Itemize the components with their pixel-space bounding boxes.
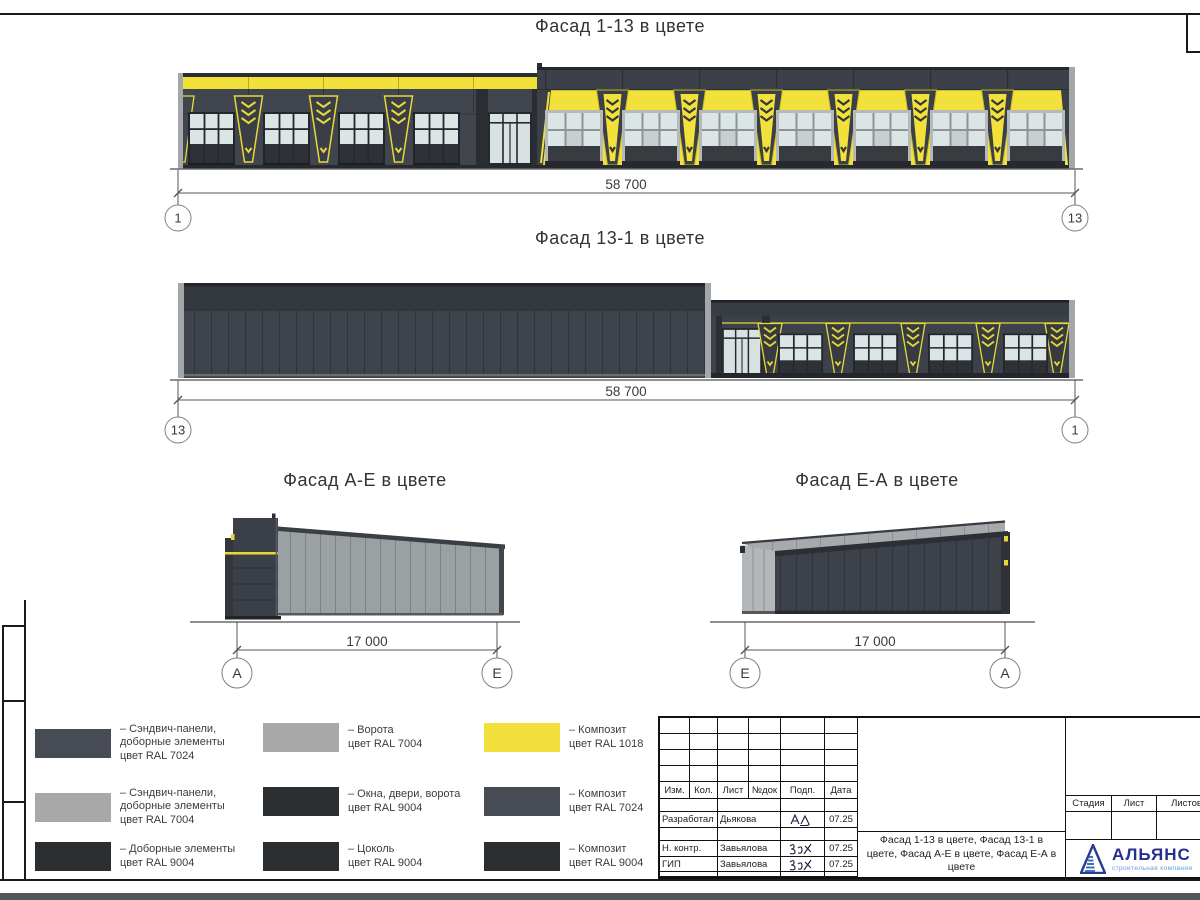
title-block-middle: Фасад 1-13 в цвете, Фасад 13-1 в цвете, … — [858, 718, 1066, 877]
legend-swatch-ral1018 — [484, 723, 560, 752]
stage-table: Стадия Лист Листов — [1066, 796, 1200, 840]
legend-label: – Окна, двери, ворота цвет RAL 9004 — [348, 788, 460, 815]
axis-1: 1 — [174, 211, 181, 226]
legend-label: – Композит цвет RAL 1018 — [569, 724, 643, 751]
title-block-left: Изм. Кол. Лист №док Подп. Дата Разработа… — [660, 718, 858, 877]
facade-e-a-dim: 17 000 — [854, 634, 895, 649]
company-logo: АЛЬЯНС строительная компания — [1066, 840, 1200, 877]
date-ncontrol: 07.25 — [825, 841, 857, 857]
date-gip: 07.25 — [825, 857, 857, 872]
facade-1-13-drawing: 58 700 1 13 — [160, 62, 1090, 234]
legend-label: – Доборные элементы цвет RAL 9004 — [120, 843, 235, 870]
sheet-header: Лист — [1112, 796, 1157, 812]
legend-swatch-ral7024 — [35, 729, 111, 758]
legend-swatch-composite7024 — [484, 787, 560, 816]
stage-header: Стадия — [1066, 796, 1112, 812]
header-podp: Подп. — [781, 782, 825, 799]
sheets-header: Листов — [1157, 796, 1200, 812]
axis-1-right: 1 — [1071, 423, 1078, 438]
legend-label: – Сэндвич-панели, доборные элементы цвет… — [120, 787, 225, 827]
axis-a2: А — [1000, 665, 1010, 681]
legend-item: – Композит цвет RAL 9004 — [484, 842, 643, 871]
frame-left-divider-1 — [2, 625, 25, 627]
axis-13: 13 — [1068, 211, 1082, 226]
signature-ncontrol — [787, 842, 819, 855]
header-list: Лист — [718, 782, 749, 799]
page-edge-strip — [0, 893, 1200, 900]
document-code-cell — [858, 718, 1065, 832]
frame-left-divider-2 — [2, 700, 25, 702]
date-developer: 07.25 — [825, 812, 857, 828]
frame-left-outer-line — [2, 625, 4, 880]
legend-item: – Композит цвет RAL 7024 — [484, 787, 643, 816]
facade-a-e-title: Фасад А-Е в цвете — [215, 470, 515, 491]
signature-developer — [787, 813, 819, 826]
frame-bottom-line — [0, 879, 1200, 881]
legend-item: – Композит цвет RAL 1018 — [484, 723, 643, 752]
role-ncontrol: Н. контр. — [660, 841, 718, 857]
revision-rows — [660, 718, 857, 782]
logo-subtitle: строительная компания — [1112, 865, 1192, 872]
frame-top-line — [0, 13, 1200, 15]
legend-item: – Доборные элементы цвет RAL 9004 — [35, 842, 235, 871]
legend-swatch-ral9004 — [35, 842, 111, 871]
frame-left-divider-3 — [2, 801, 25, 803]
legend-item: – Цоколь цвет RAL 9004 — [263, 842, 422, 871]
facade-1-13-title: Фасад 1-13 в цвете — [470, 16, 770, 37]
legend-label: – Сэндвич-панели, доборные элементы цвет… — [120, 723, 225, 763]
legend-label: – Композит цвет RAL 7024 — [569, 788, 643, 815]
role-developer: Разработал — [660, 812, 718, 828]
drawing-sheet: Фасад 1-13 в цвете Фасад 13-1 в цвете Фа… — [0, 0, 1200, 900]
legend-swatch-plinth — [263, 842, 339, 871]
title-block-header-row: Изм. Кол. Лист №док Подп. Дата — [660, 782, 857, 799]
legend-item: – Сэндвич-панели, доборные элементы цвет… — [35, 787, 225, 827]
name-developer: Дьякова — [718, 812, 781, 828]
legend-item: – Сэндвич-панели, доборные элементы цвет… — [35, 723, 225, 763]
legend-swatch-ral7004 — [35, 793, 111, 822]
legend-item: – Ворота цвет RAL 7004 — [263, 723, 422, 752]
role-gip: ГИП — [660, 857, 718, 872]
header-data: Дата — [825, 782, 857, 799]
signature-rows: Разработал Дьякова 07.25 Н. контр. Завья… — [660, 799, 857, 877]
name-gip: Завьялова — [718, 857, 781, 872]
header-kol: Кол. — [690, 782, 718, 799]
legend-swatch-composite9004 — [484, 842, 560, 871]
axis-e2: Е — [740, 665, 749, 681]
sheet-title: Фасад 1-13 в цвете, Фасад 13-1 в цвете, … — [858, 832, 1065, 877]
legend-item: – Окна, двери, ворота цвет RAL 9004 — [263, 787, 460, 816]
legend-swatch-gates — [263, 723, 339, 752]
facade-13-1-drawing: 58 700 13 1 — [160, 276, 1090, 448]
legend-swatch-windows — [263, 787, 339, 816]
axis-e: Е — [492, 665, 501, 681]
legend-label: – Ворота цвет RAL 7004 — [348, 724, 422, 751]
frame-corner-box — [1186, 13, 1200, 53]
title-block: Изм. Кол. Лист №док Подп. Дата Разработа… — [658, 716, 1200, 879]
facade-13-1-dim: 58 700 — [605, 384, 646, 399]
header-ndok: №док — [749, 782, 781, 799]
facade-1-13-dim: 58 700 — [605, 177, 646, 192]
axis-13-left: 13 — [171, 423, 185, 438]
signature-gip — [787, 858, 819, 871]
axis-a: А — [232, 665, 242, 681]
frame-left-inner-line — [24, 600, 26, 880]
legend-label: – Композит цвет RAL 9004 — [569, 843, 643, 870]
facade-e-a-title: Фасад Е-А в цвете — [727, 470, 1027, 491]
logo-pyramid-icon — [1080, 844, 1106, 874]
facade-a-e-drawing: 17 000 А Е — [185, 502, 530, 700]
header-izm: Изм. — [660, 782, 690, 799]
logo-name: АЛЬЯНС — [1112, 845, 1192, 865]
facade-a-e-dim: 17 000 — [346, 634, 387, 649]
name-ncontrol: Завьялова — [718, 841, 781, 857]
legend-label: – Цоколь цвет RAL 9004 — [348, 843, 422, 870]
facade-e-a-drawing: 17 000 Е А — [700, 502, 1045, 700]
title-block-right: Стадия Лист Листов — [1066, 718, 1200, 877]
